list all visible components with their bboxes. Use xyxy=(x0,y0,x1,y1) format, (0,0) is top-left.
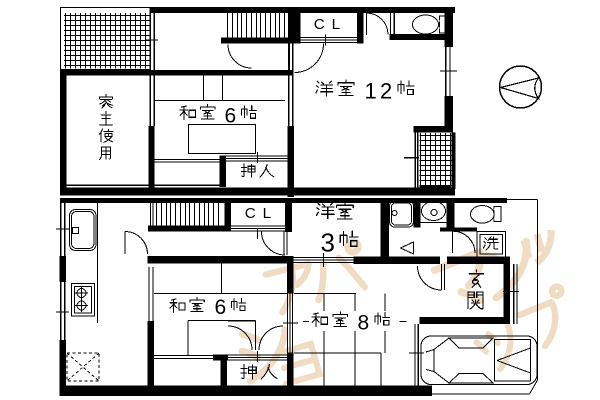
svg-text:3: 3 xyxy=(321,228,335,258)
svg-text:6: 6 xyxy=(215,296,227,319)
svg-text:6: 6 xyxy=(225,105,237,128)
svg-text:1: 1 xyxy=(365,79,377,104)
svg-text:CL: CL xyxy=(314,16,347,33)
svg-text:8: 8 xyxy=(358,312,370,335)
svg-text:CL: CL xyxy=(245,205,278,222)
svg-text:2: 2 xyxy=(380,79,392,104)
